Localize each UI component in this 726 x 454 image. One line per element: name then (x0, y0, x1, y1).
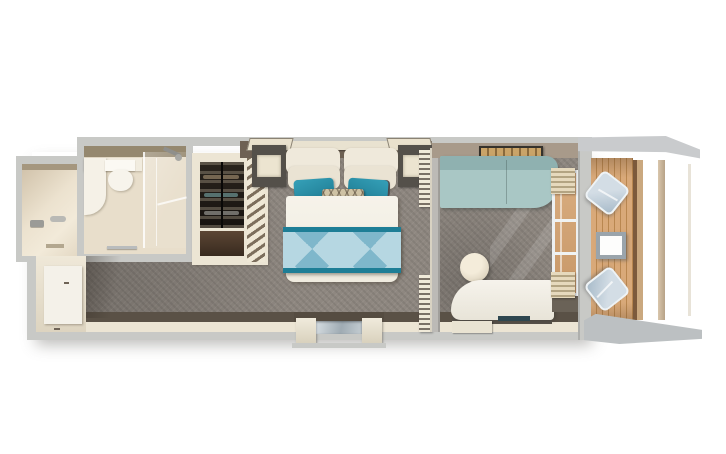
sofa-seam (506, 160, 507, 204)
nightstand-top (257, 155, 281, 177)
curtain-top (551, 168, 575, 194)
left-outer-wall (27, 252, 36, 340)
entry-door (316, 321, 362, 334)
deck-edge-highlight (637, 160, 643, 320)
chaise-step (452, 321, 492, 333)
wardrobe-divider (221, 162, 223, 228)
glass-panel-edge (143, 152, 145, 248)
railing-outer-edge (688, 164, 691, 316)
curtain-bottom (551, 272, 575, 298)
toilet (108, 170, 133, 191)
teal-sofa (440, 156, 558, 208)
door-hinge (54, 328, 60, 330)
right-outer-wall (578, 144, 592, 340)
hand-shower (50, 216, 66, 222)
shower-drain (46, 244, 64, 248)
bathroom (77, 138, 193, 262)
door-handle (64, 282, 69, 284)
bathroom-door-panel (44, 266, 82, 324)
entry-nook (36, 256, 86, 332)
balcony-door-sill (552, 296, 579, 312)
diamond-pattern-throw (283, 227, 401, 273)
entry-alcove-post-right (362, 318, 382, 344)
privacy-partition-bottom (584, 312, 702, 344)
bottom-outer-wall-sitting (432, 332, 592, 340)
glass-panel-edge-2 (156, 158, 157, 246)
shower-controls (30, 220, 44, 227)
room-divider-wall (430, 148, 440, 332)
shower-room-floor (22, 164, 82, 256)
chaise-lounge (451, 280, 554, 320)
entry-alcove-post-left (296, 318, 316, 344)
queen-bed (286, 146, 398, 282)
door-mat (498, 316, 530, 321)
square-side-table (596, 232, 626, 259)
sofa-back-cushion (440, 156, 558, 170)
round-ottoman (460, 253, 489, 282)
entry-alcove-outer-edge (292, 343, 386, 348)
shower-room-wall-band (22, 164, 82, 170)
nook-shadow (86, 256, 126, 318)
chair-seam (596, 281, 613, 298)
chair-seam (598, 189, 618, 202)
door-mullion (555, 219, 576, 222)
door-mullion-2 (555, 252, 576, 255)
balcony-railing (658, 160, 665, 320)
stateroom-floorplan (0, 0, 726, 454)
wardrobe-lower-cabinet (200, 231, 244, 256)
nightstand-left (252, 145, 286, 187)
towel-bar (107, 246, 137, 249)
shower-head (175, 154, 182, 161)
